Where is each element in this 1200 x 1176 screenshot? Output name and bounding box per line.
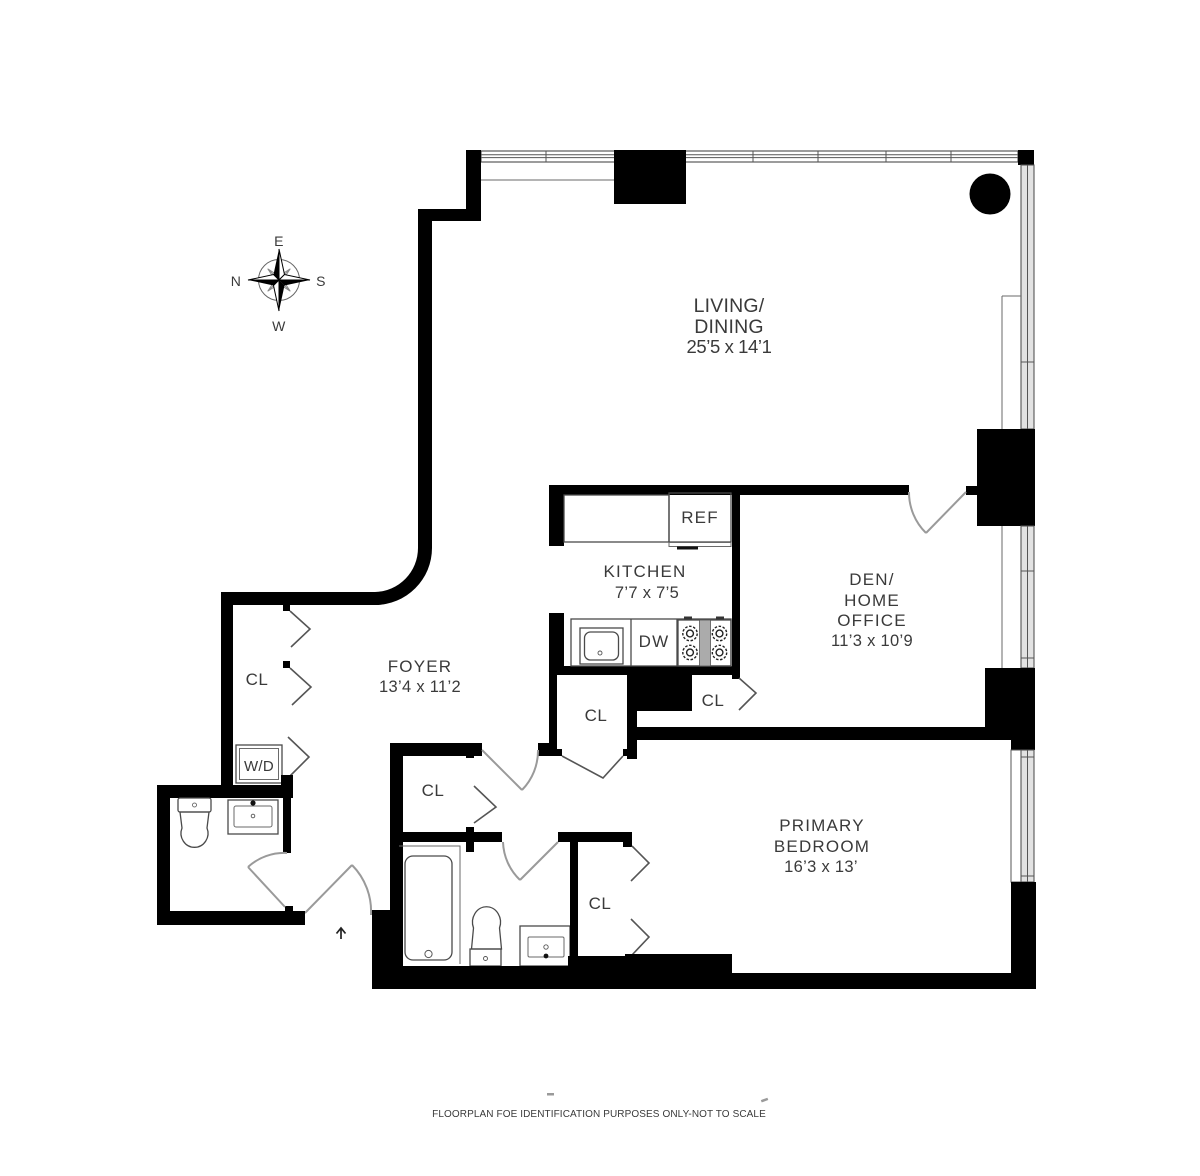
svg-text:DEN/: DEN/ (849, 570, 894, 589)
svg-text:PRIMARY: PRIMARY (779, 816, 865, 835)
svg-text:CL: CL (422, 781, 445, 800)
svg-text:25’5 x 14’1: 25’5 x 14’1 (686, 336, 771, 357)
svg-text:DW: DW (639, 632, 670, 651)
svg-text:OFFICE: OFFICE (837, 611, 907, 630)
svg-text:CL: CL (589, 894, 612, 913)
svg-text:S: S (316, 273, 326, 289)
svg-text:FLOORPLAN FOE IDENTIFICATION P: FLOORPLAN FOE IDENTIFICATION PURPOSES ON… (432, 1109, 766, 1120)
svg-text:7’7 x 7’5: 7’7 x 7’5 (615, 584, 679, 602)
svg-text:16’3 x 13’: 16’3 x 13’ (784, 858, 858, 876)
svg-text:HOME: HOME (844, 591, 900, 610)
svg-text:CL: CL (585, 706, 608, 725)
svg-text:N: N (231, 273, 242, 289)
svg-text:KITCHEN: KITCHEN (603, 562, 686, 581)
svg-text:W/D: W/D (244, 758, 274, 775)
svg-text:13’4 x 11’2: 13’4 x 11’2 (379, 678, 461, 696)
svg-text:LIVING/: LIVING/ (694, 295, 765, 317)
svg-text:BEDROOM: BEDROOM (774, 837, 870, 856)
svg-text:E: E (274, 233, 284, 249)
svg-text:REF: REF (681, 508, 719, 527)
svg-text:FOYER: FOYER (388, 657, 453, 676)
svg-text:DINING: DINING (694, 316, 763, 338)
svg-text:CL: CL (246, 670, 269, 689)
svg-text:11’3 x 10’9: 11’3 x 10’9 (831, 632, 913, 650)
svg-text:CL: CL (702, 691, 725, 710)
svg-text:W: W (272, 318, 286, 334)
